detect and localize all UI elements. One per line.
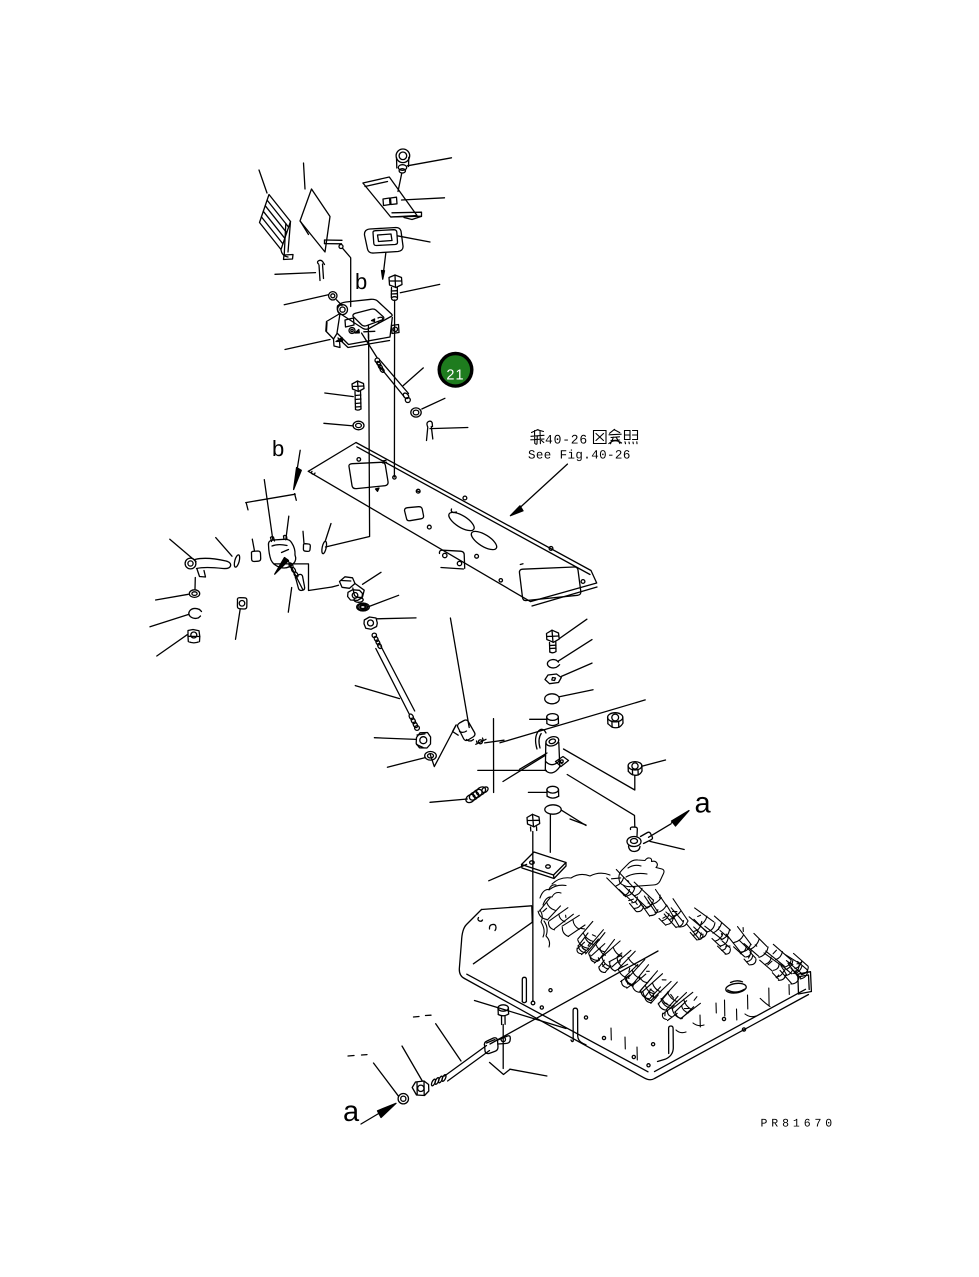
svg-text:b: b xyxy=(355,269,367,294)
svg-text:b: b xyxy=(272,436,284,461)
svg-text:See Fig.40-26: See Fig.40-26 xyxy=(528,449,631,463)
svg-text:40-26: 40-26 xyxy=(545,433,588,448)
svg-text:PR81670: PR81670 xyxy=(761,1118,837,1131)
svg-text:a: a xyxy=(343,1096,360,1128)
svg-text:21: 21 xyxy=(446,368,464,384)
svg-text:a: a xyxy=(695,788,712,820)
